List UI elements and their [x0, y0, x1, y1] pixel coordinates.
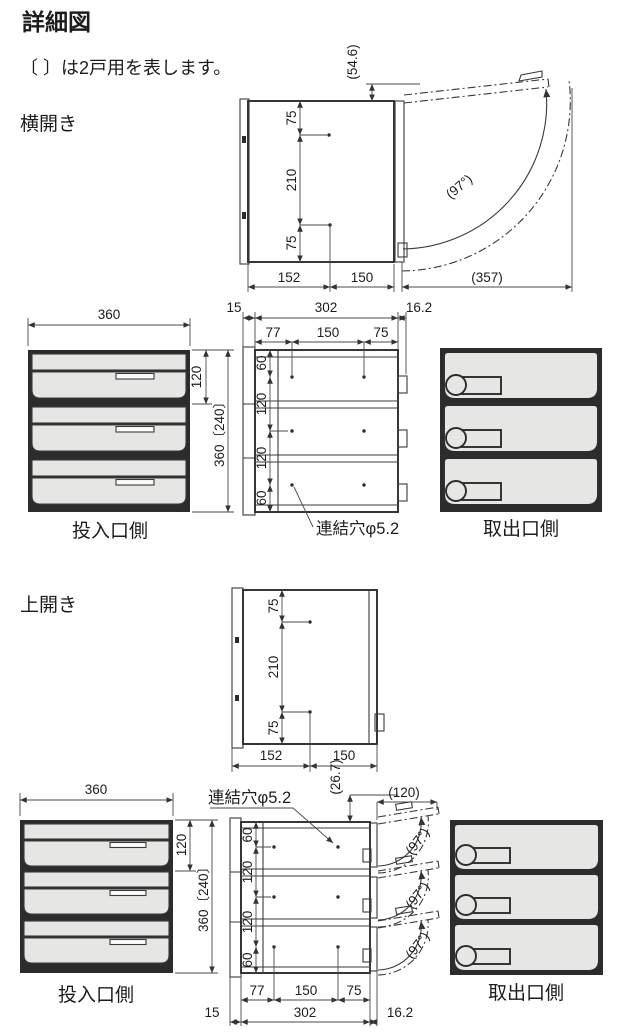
mail-door [444, 458, 598, 505]
dim-302: 302 [294, 1005, 317, 1020]
lock-cylinder [456, 845, 476, 865]
technical-drawing: 詳細図 〔 〕は2戸用を表します。 横開き 上開き (97°) (54.6) 7… [0, 0, 619, 1034]
mail-unit [32, 460, 186, 504]
dim-60: 60 [240, 827, 255, 842]
lock-cylinder [446, 481, 466, 501]
dim-152: 152 [260, 748, 283, 763]
dim-360-240: 360〔240〕 [196, 860, 211, 932]
dim-357: (357) [471, 270, 503, 285]
dim-120: 120 [174, 834, 189, 857]
dim-77: 77 [249, 983, 264, 998]
dim-60: 60 [254, 490, 269, 505]
link-hole-label: 連結穴φ5.2 [316, 519, 399, 538]
dim-152: 152 [278, 270, 301, 285]
mail-door [444, 352, 598, 399]
bracket-note: 〔 〕は2戸用を表します。 [20, 58, 231, 78]
dim-360: 360 [85, 782, 108, 797]
dim-75-bottom: 75 [284, 235, 299, 250]
mail-door [454, 824, 599, 870]
dim-120-proj: (120) [388, 785, 420, 800]
dim-120: 120 [240, 911, 255, 934]
dim-150: 150 [317, 325, 340, 340]
dim-120: 120 [240, 861, 255, 884]
mail-door [454, 874, 599, 920]
output-side-view-top: 取出口側 [440, 348, 602, 540]
mail-door [444, 405, 598, 452]
dim-15: 15 [204, 1005, 219, 1020]
section-label-top-open: 上開き [20, 594, 77, 616]
view-label-output-side: 取出口側 [488, 982, 564, 1004]
page-title: 詳細図 [22, 9, 91, 35]
link-hole-label: 連結穴φ5.2 [208, 788, 291, 807]
dim-360-240: 360〔240〕 [212, 395, 227, 467]
dim-150: 150 [295, 983, 318, 998]
dim-26-7: (26.7) [328, 759, 343, 794]
mail-door [454, 924, 599, 971]
view-label-input-side: 投入口側 [72, 520, 148, 542]
mail-unit [24, 921, 169, 963]
dim-75: 75 [346, 983, 361, 998]
lock-cylinder [446, 428, 466, 448]
dim-75: 75 [373, 325, 388, 340]
dim-77: 77 [265, 325, 280, 340]
view-label-output-side: 取出口側 [483, 518, 559, 540]
dim-150: 150 [351, 270, 374, 285]
dim-210: 210 [266, 656, 281, 679]
mail-unit [24, 872, 169, 914]
section-label-side-open: 横開き [20, 113, 77, 135]
mail-unit [24, 824, 169, 866]
dim-120: 120 [189, 366, 204, 389]
dim-16-2: 16.2 [387, 1005, 413, 1020]
mail-unit [32, 407, 186, 451]
dim-120: 120 [254, 393, 269, 416]
dim-75-top: 75 [266, 598, 281, 613]
dim-302: 302 [315, 300, 338, 315]
view-label-input-side: 投入口側 [58, 984, 134, 1006]
dim-210: 210 [284, 169, 299, 192]
dim-16-2: 16.2 [406, 300, 432, 315]
dim-360: 360 [98, 307, 121, 322]
dim-75-bottom: 75 [266, 720, 281, 735]
dim-door-offset: (54.6) [345, 44, 360, 79]
dim-60: 60 [240, 952, 255, 967]
dim-120: 120 [254, 447, 269, 470]
drawing-page: 詳細図 〔 〕は2戸用を表します。 横開き 上開き (97°) (54.6) 7… [0, 0, 619, 1034]
mail-unit [32, 354, 186, 398]
dim-60: 60 [254, 355, 269, 370]
lock-cylinder [446, 375, 466, 395]
dim-15: 15 [226, 300, 241, 315]
lock-cylinder [456, 946, 476, 966]
dim-75-top: 75 [284, 110, 299, 125]
lock-cylinder [456, 895, 476, 915]
